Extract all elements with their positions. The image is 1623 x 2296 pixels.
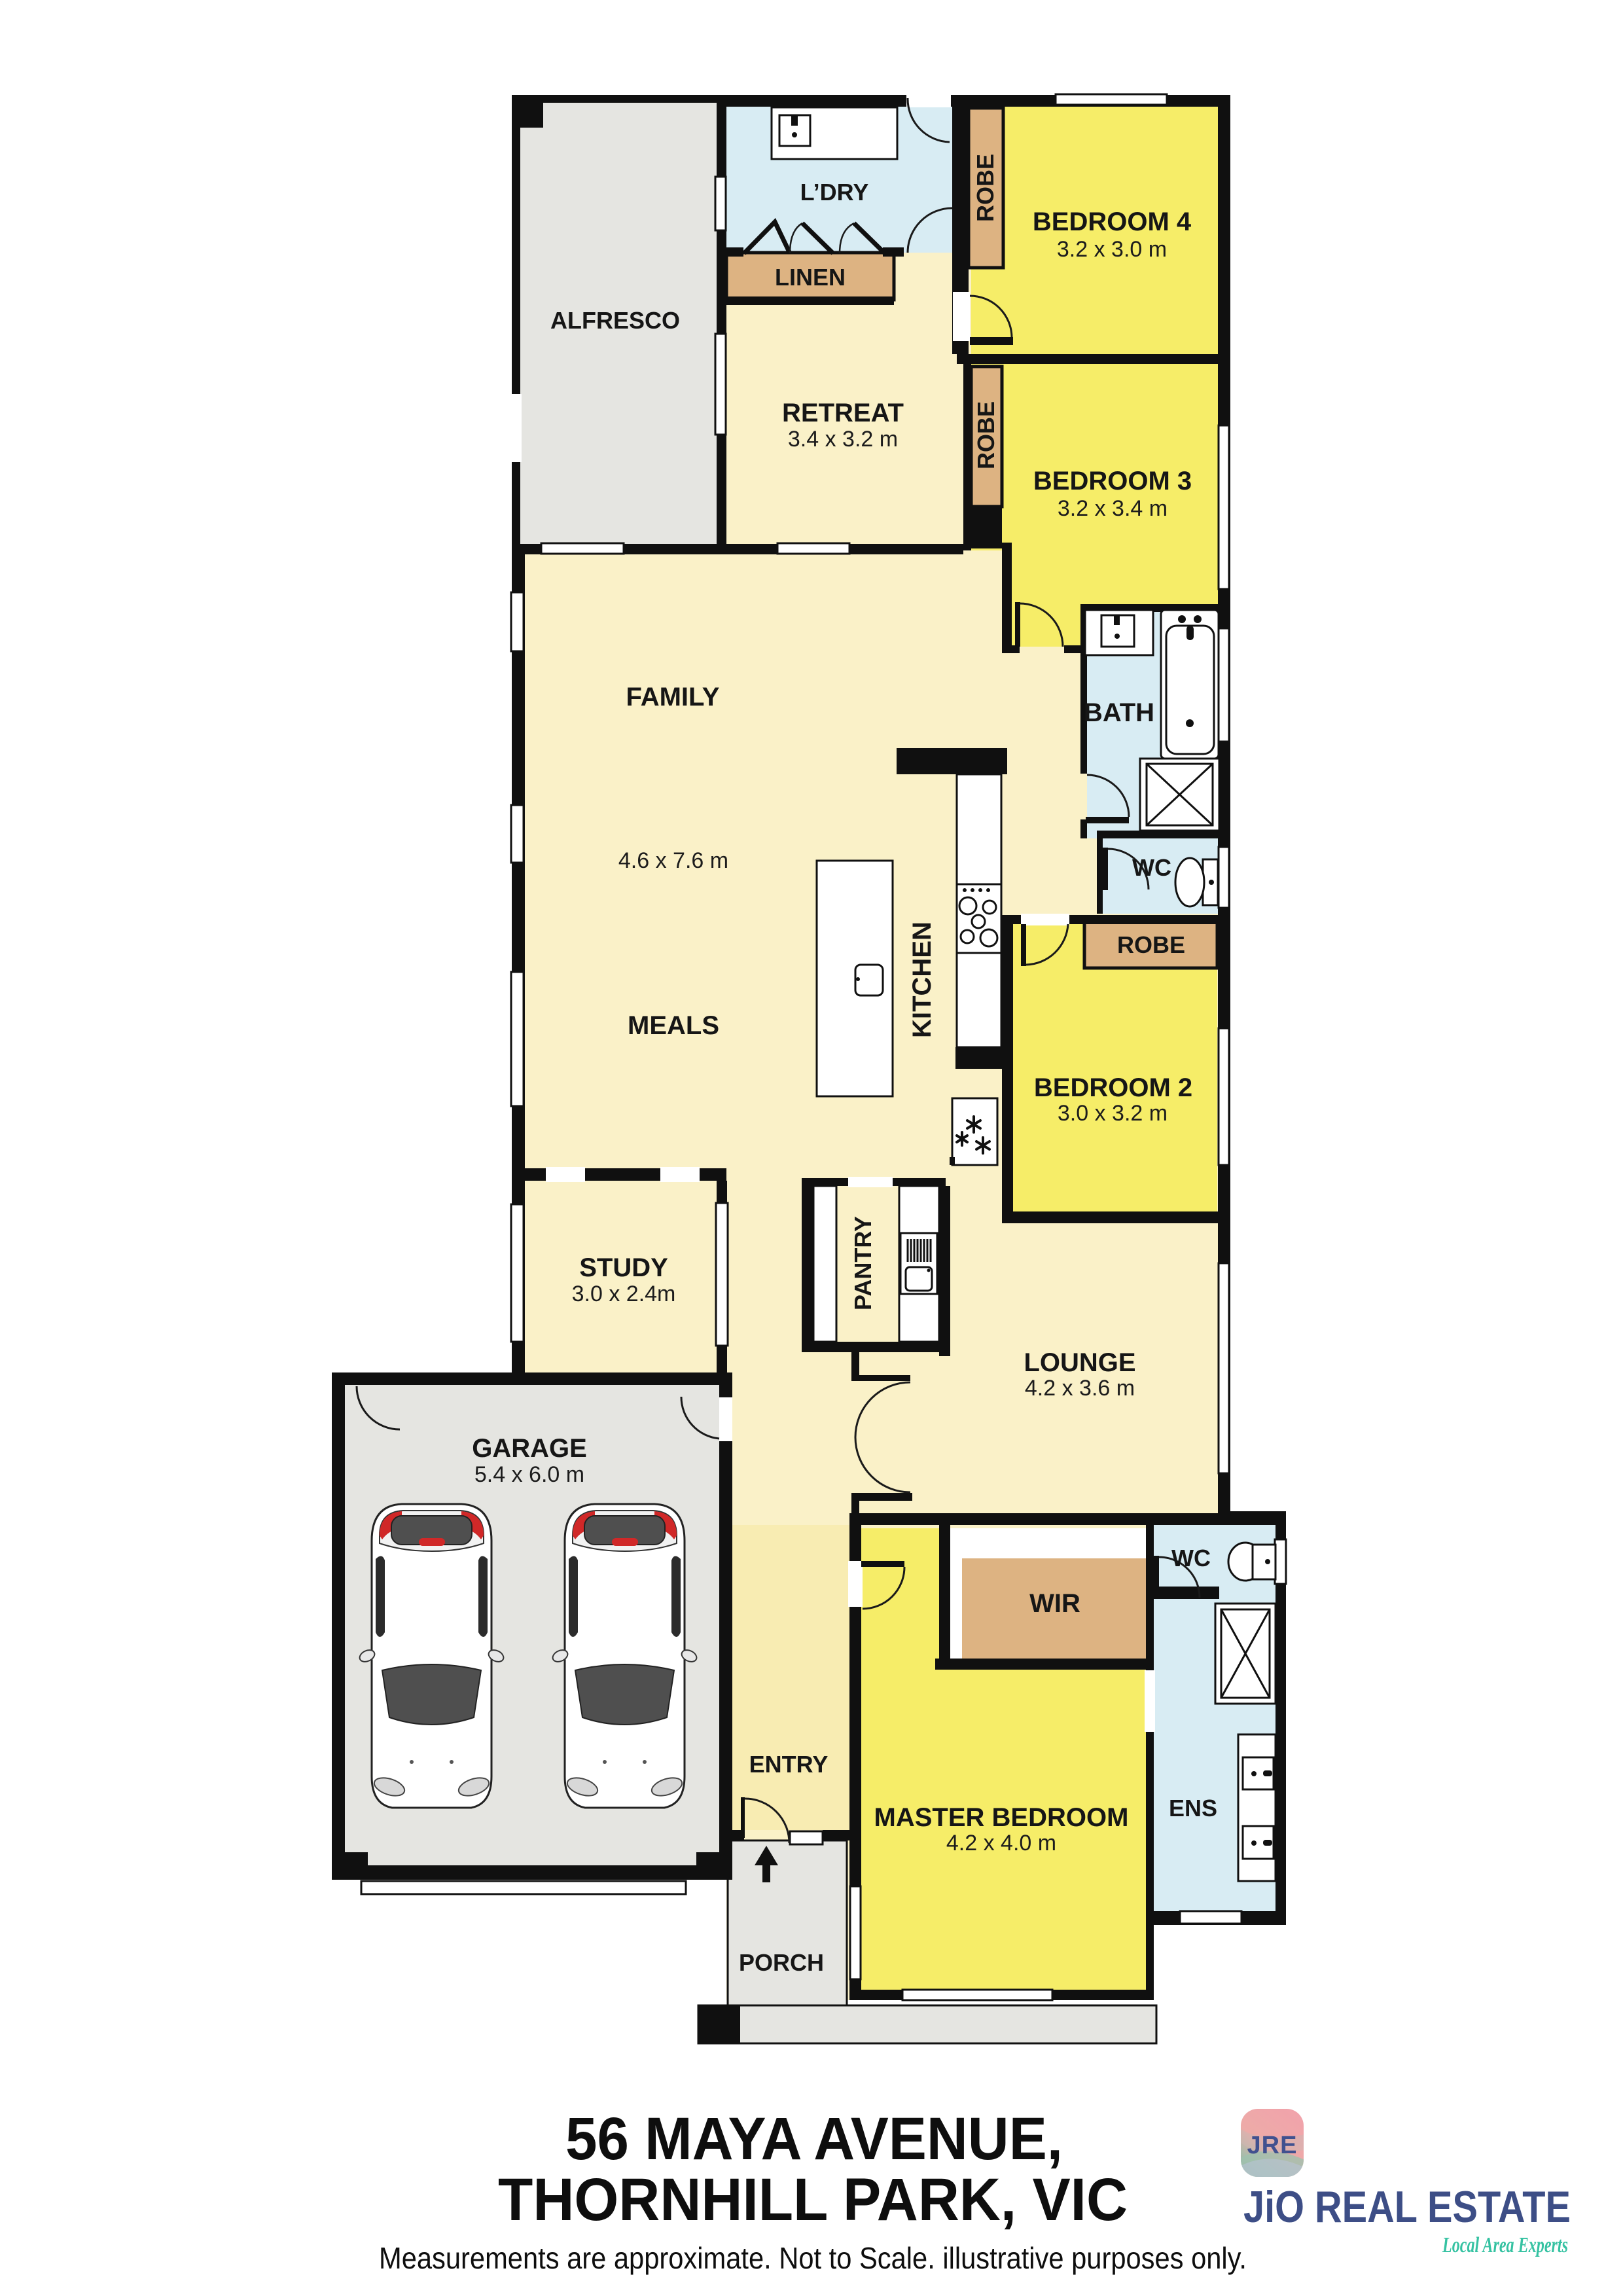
svg-text:L’DRY: L’DRY	[800, 179, 869, 206]
svg-text:4.6 x 7.6 m: 4.6 x 7.6 m	[618, 848, 728, 873]
svg-text:KITCHEN: KITCHEN	[908, 922, 936, 1038]
svg-text:4.2 x 4.0 m: 4.2 x 4.0 m	[946, 1831, 1056, 1856]
svg-text:BEDROOM 2: BEDROOM 2	[1034, 1073, 1192, 1102]
svg-text:3.4 x 3.2 m: 3.4 x 3.2 m	[788, 427, 898, 452]
svg-text:ROBE: ROBE	[972, 154, 999, 222]
svg-text:Measurements are approximate.: Measurements are approximate. Not to Sca…	[379, 2241, 1247, 2275]
svg-text:56 MAYA AVENUE,: 56 MAYA AVENUE,	[565, 2106, 1063, 2172]
svg-text:BEDROOM 4: BEDROOM 4	[1033, 207, 1192, 236]
svg-text:ENTRY: ENTRY	[749, 1751, 829, 1778]
svg-text:LOUNGE: LOUNGE	[1024, 1348, 1135, 1377]
svg-text:JiO REAL ESTATE: JiO REAL ESTATE	[1243, 2182, 1571, 2232]
svg-text:WIR: WIR	[1029, 1589, 1080, 1618]
svg-text:JRE: JRE	[1247, 2132, 1298, 2159]
svg-text:RETREAT: RETREAT	[782, 399, 904, 427]
svg-text:5.4 x 6.0 m: 5.4 x 6.0 m	[474, 1462, 584, 1487]
svg-text:ROBE: ROBE	[972, 401, 999, 469]
svg-text:MEALS: MEALS	[628, 1011, 719, 1040]
svg-text:3.0 x 2.4m: 3.0 x 2.4m	[572, 1282, 676, 1306]
svg-text:PORCH: PORCH	[739, 1949, 824, 1976]
svg-text:BEDROOM 3: BEDROOM 3	[1033, 467, 1192, 495]
svg-text:WC: WC	[1171, 1545, 1211, 1571]
svg-text:3.0 x 3.2 m: 3.0 x 3.2 m	[1058, 1101, 1168, 1126]
svg-text:Local Area Experts: Local Area Experts	[1442, 2233, 1568, 2257]
svg-text:STUDY: STUDY	[579, 1253, 668, 1282]
svg-text:3.2 x 3.4 m: 3.2 x 3.4 m	[1058, 496, 1168, 521]
svg-text:ALFRESCO: ALFRESCO	[550, 307, 680, 334]
svg-text:WC: WC	[1132, 854, 1171, 881]
svg-text:THORNHILL PARK, VIC: THORNHILL PARK, VIC	[498, 2166, 1128, 2233]
svg-text:4.2 x 3.6 m: 4.2 x 3.6 m	[1025, 1376, 1135, 1401]
svg-text:MASTER BEDROOM: MASTER BEDROOM	[874, 1803, 1129, 1832]
svg-text:3.2 x 3.0 m: 3.2 x 3.0 m	[1057, 237, 1167, 262]
svg-text:FAMILY: FAMILY	[626, 683, 720, 711]
svg-text:BATH: BATH	[1084, 698, 1154, 727]
svg-text:PANTRY: PANTRY	[849, 1216, 876, 1310]
svg-text:GARAGE: GARAGE	[472, 1434, 587, 1463]
svg-text:LINEN: LINEN	[775, 264, 846, 291]
svg-text:ROBE: ROBE	[1117, 931, 1185, 958]
svg-text:ENS: ENS	[1169, 1795, 1217, 1821]
